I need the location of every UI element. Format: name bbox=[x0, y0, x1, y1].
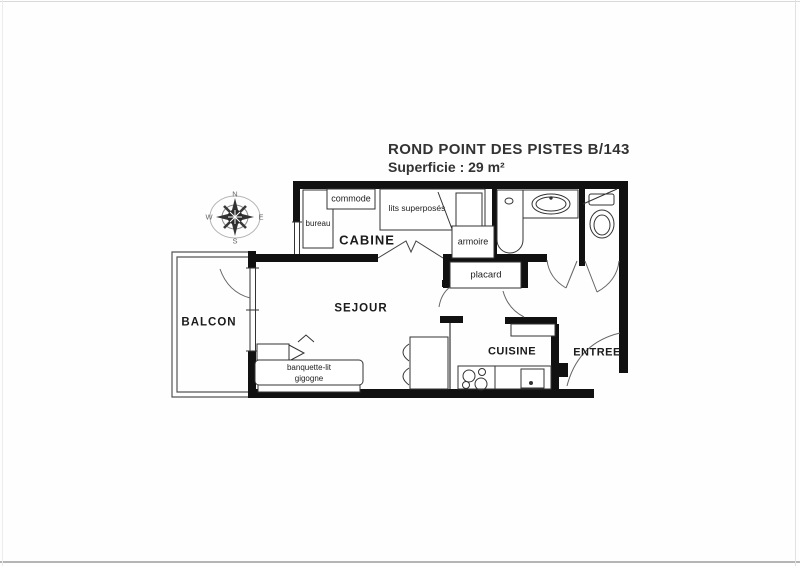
furniture-label-sofabed-line1: banquette-lit bbox=[287, 364, 331, 372]
entry-door-arc bbox=[567, 333, 620, 386]
chair-bottom bbox=[403, 368, 409, 385]
furniture-label-desk: bureau bbox=[306, 220, 331, 228]
kitchen-upper-cabinet bbox=[511, 324, 555, 336]
compass-rose bbox=[210, 196, 260, 238]
room-label-cabine: CABINE bbox=[339, 234, 395, 247]
wc-door bbox=[585, 261, 619, 292]
furniture-label-bunkbeds: lits superposés bbox=[389, 204, 446, 213]
floor-plan-drawing bbox=[0, 0, 800, 566]
kitchen-door-arc bbox=[503, 291, 524, 317]
wall-kitchen-top-left bbox=[440, 316, 463, 323]
kitchen-sink bbox=[521, 369, 544, 388]
furniture-label-dresser: commode bbox=[331, 195, 371, 204]
wall-sejour-top bbox=[250, 254, 378, 262]
plan-title: ROND POINT DES PISTES B/143 bbox=[388, 141, 630, 158]
compass-label-south: S bbox=[232, 237, 237, 246]
bathroom-door bbox=[547, 260, 577, 288]
compass-label-north: N bbox=[232, 190, 237, 199]
room-label-entree: ENTREE bbox=[573, 348, 621, 359]
compass-label-east: E bbox=[258, 213, 263, 222]
furniture-label-wardrobe: armoire bbox=[458, 238, 489, 247]
furniture-label-sofabed-line2: gigogne bbox=[295, 375, 323, 383]
furniture-label-closet: placard bbox=[470, 270, 501, 280]
floor-plan-page: ROND POINT DES PISTES B/143 Superficie :… bbox=[0, 0, 800, 566]
wall-balcony-stub-top bbox=[248, 251, 256, 268]
balcony-door-arc bbox=[220, 269, 250, 298]
room-label-sejour: SEJOUR bbox=[334, 303, 387, 315]
wall-wc-left bbox=[579, 188, 585, 266]
wall-kitchen-top-right bbox=[505, 317, 557, 324]
wall-kitchen-right-bump bbox=[551, 363, 568, 377]
bathtub bbox=[497, 190, 523, 253]
chair-top bbox=[403, 344, 409, 361]
window-balcony-door bbox=[246, 268, 259, 351]
chairs bbox=[403, 344, 409, 385]
window-cabine bbox=[292, 222, 302, 254]
plan-surface-area: Superficie : 29 m² bbox=[388, 159, 505, 175]
placard-cap-right bbox=[521, 262, 528, 288]
dining-table bbox=[410, 337, 448, 389]
wall-cabine-left bbox=[293, 181, 300, 222]
washbasin bbox=[523, 190, 578, 218]
windows bbox=[246, 222, 302, 351]
room-label-cuisine: CUISINE bbox=[488, 347, 536, 358]
compass-label-west: W bbox=[205, 213, 212, 222]
wall-top bbox=[293, 181, 628, 189]
room-label-balcon: BALCON bbox=[181, 317, 236, 329]
toilet bbox=[583, 189, 617, 238]
wall-right bbox=[619, 181, 628, 373]
hall-door-arc bbox=[439, 287, 450, 307]
